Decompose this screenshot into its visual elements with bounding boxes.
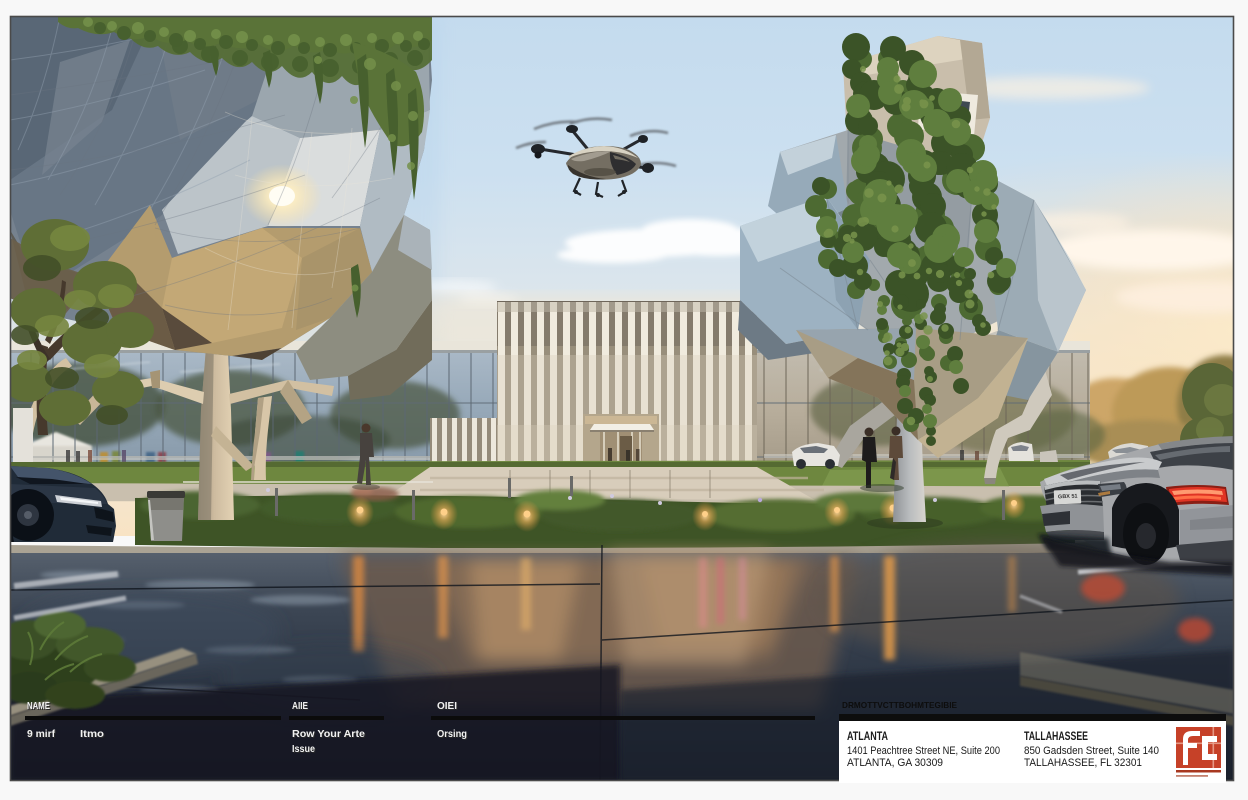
svg-text:Issue: Issue [292,744,315,755]
svg-text:TALLAHASSEE, FL 32301: TALLAHASSEE, FL 32301 [1024,757,1142,769]
svg-text:AIIE: AIIE [292,701,308,712]
svg-text:ATLANTA, GA 30309: ATLANTA, GA 30309 [847,757,943,769]
svg-text:ATLANTA: ATLANTA [847,729,888,743]
svg-text:1401 Peachtree Street NE, Suit: 1401 Peachtree Street NE, Suite 200 [847,745,1000,757]
svg-text:TALLAHASSEE: TALLAHASSEE [1024,729,1088,743]
svg-text:DRMOTTVCTTBOHMTEGIBIE: DRMOTTVCTTBOHMTEGIBIE [842,700,957,710]
svg-text:Itmo: Itmo [80,729,104,740]
svg-text:Row Your Arte: Row Your Arte [292,729,365,740]
svg-text:9 mirf: 9 mirf [27,729,56,740]
svg-text:OIEI: OIEI [437,701,457,712]
svg-text:NAME: NAME [27,701,50,712]
svg-text:GBX 51: GBX 51 [1058,494,1078,501]
svg-text:850 Gadsden Street, Suite 140: 850 Gadsden Street, Suite 140 [1024,745,1159,757]
svg-text:Orsing: Orsing [437,729,467,740]
